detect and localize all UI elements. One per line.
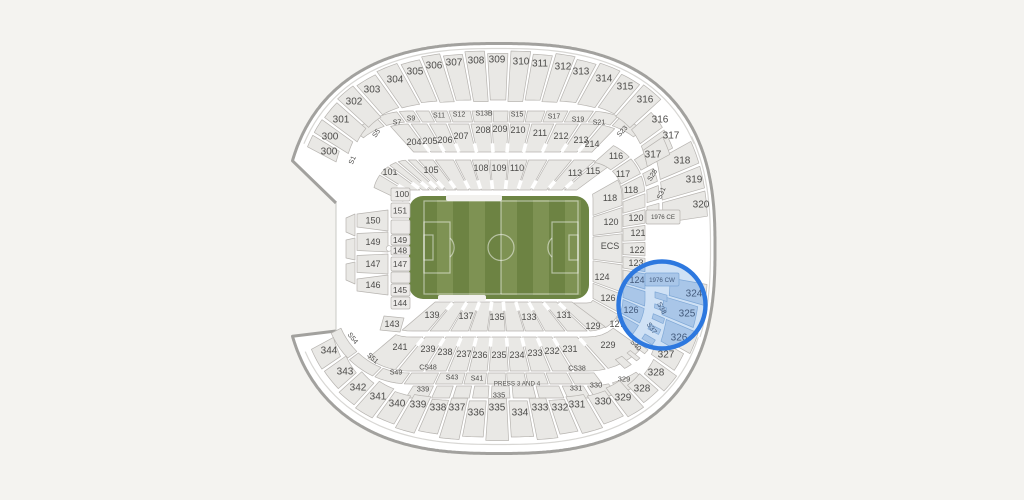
- svg-text:137: 137: [458, 311, 473, 321]
- svg-text:116: 116: [609, 151, 623, 161]
- svg-text:338: 338: [430, 403, 447, 414]
- svg-text:302: 302: [346, 97, 363, 108]
- svg-text:231: 231: [562, 344, 577, 354]
- svg-text:S21: S21: [593, 120, 606, 127]
- svg-text:241: 241: [392, 342, 407, 352]
- svg-text:308: 308: [468, 56, 485, 67]
- svg-text:343: 343: [337, 367, 354, 378]
- svg-text:330: 330: [590, 381, 603, 390]
- svg-text:339: 339: [417, 385, 430, 394]
- svg-text:337: 337: [449, 403, 466, 414]
- svg-text:339: 339: [410, 400, 427, 411]
- svg-text:316: 316: [652, 115, 669, 126]
- svg-text:303: 303: [364, 85, 381, 96]
- svg-text:314: 314: [596, 74, 613, 85]
- svg-text:324: 324: [686, 289, 703, 300]
- svg-text:332: 332: [552, 403, 569, 414]
- svg-text:1976 CE: 1976 CE: [651, 214, 675, 221]
- svg-text:236: 236: [472, 350, 487, 360]
- svg-text:126: 126: [600, 293, 615, 303]
- svg-text:211: 211: [533, 128, 547, 138]
- svg-text:336: 336: [468, 408, 485, 419]
- svg-text:331: 331: [569, 400, 586, 411]
- svg-text:209: 209: [492, 124, 507, 134]
- svg-text:S15: S15: [511, 112, 524, 119]
- svg-text:109: 109: [491, 163, 506, 173]
- svg-text:329: 329: [615, 393, 632, 404]
- svg-text:108: 108: [473, 163, 488, 173]
- svg-text:151: 151: [393, 206, 407, 216]
- svg-text:315: 315: [617, 82, 634, 93]
- svg-text:214: 214: [584, 139, 599, 149]
- svg-text:212: 212: [553, 131, 568, 141]
- svg-text:147: 147: [393, 259, 407, 269]
- svg-text:330: 330: [595, 397, 612, 408]
- svg-text:131: 131: [556, 310, 571, 320]
- svg-text:229: 229: [600, 340, 615, 350]
- svg-text:235: 235: [491, 350, 506, 360]
- svg-text:301: 301: [333, 115, 350, 126]
- svg-text:319: 319: [686, 175, 703, 186]
- svg-text:135: 135: [489, 312, 504, 322]
- svg-text:S41: S41: [471, 376, 484, 383]
- svg-text:310: 310: [513, 57, 530, 68]
- svg-text:300: 300: [322, 132, 339, 143]
- svg-text:344: 344: [321, 346, 338, 357]
- svg-text:333: 333: [532, 403, 549, 414]
- svg-text:318: 318: [674, 156, 691, 167]
- svg-text:117: 117: [616, 169, 630, 179]
- svg-text:118: 118: [624, 185, 638, 195]
- svg-text:342: 342: [350, 383, 367, 394]
- svg-text:122: 122: [629, 245, 644, 255]
- svg-text:204: 204: [406, 137, 421, 147]
- svg-text:238: 238: [437, 347, 452, 357]
- svg-text:317: 317: [663, 131, 680, 142]
- svg-text:233: 233: [527, 348, 542, 358]
- svg-text:124: 124: [594, 272, 609, 282]
- svg-text:105: 105: [423, 165, 438, 175]
- svg-text:313: 313: [573, 67, 590, 78]
- svg-text:149: 149: [365, 237, 380, 247]
- svg-text:208: 208: [475, 125, 490, 135]
- svg-text:207: 207: [453, 131, 468, 141]
- svg-text:S7: S7: [393, 120, 402, 127]
- svg-text:309: 309: [489, 55, 506, 66]
- svg-text:206: 206: [437, 135, 452, 145]
- svg-text:148: 148: [393, 246, 407, 256]
- svg-text:126: 126: [623, 305, 638, 315]
- svg-text:145: 145: [393, 285, 407, 295]
- svg-text:334: 334: [512, 408, 529, 419]
- svg-text:120: 120: [628, 213, 643, 223]
- svg-text:306: 306: [426, 61, 443, 72]
- svg-text:S19: S19: [572, 117, 585, 124]
- svg-text:150: 150: [365, 216, 380, 226]
- svg-text:325: 325: [679, 309, 696, 320]
- svg-text:307: 307: [446, 58, 463, 69]
- svg-text:232: 232: [544, 346, 559, 356]
- svg-text:331: 331: [570, 384, 583, 393]
- svg-text:S49: S49: [390, 370, 403, 377]
- svg-text:S13B: S13B: [475, 111, 492, 118]
- svg-text:110: 110: [510, 163, 524, 173]
- svg-text:320: 320: [693, 200, 710, 211]
- svg-text:CS38: CS38: [568, 366, 586, 373]
- svg-text:237: 237: [456, 349, 471, 359]
- svg-text:327: 327: [658, 350, 675, 361]
- svg-text:139: 139: [424, 310, 439, 320]
- svg-text:146: 146: [365, 280, 380, 290]
- svg-text:121: 121: [630, 228, 645, 238]
- svg-text:S17: S17: [548, 114, 561, 121]
- svg-text:328: 328: [648, 368, 665, 379]
- svg-text:340: 340: [389, 399, 406, 410]
- svg-text:133: 133: [521, 312, 536, 322]
- svg-text:S12: S12: [453, 112, 466, 119]
- svg-text:341: 341: [370, 392, 387, 403]
- svg-text:S43: S43: [446, 375, 459, 382]
- svg-text:239: 239: [420, 344, 435, 354]
- svg-text:129: 129: [585, 321, 600, 331]
- svg-text:144: 144: [393, 298, 407, 308]
- svg-text:311: 311: [532, 59, 548, 70]
- svg-text:316: 316: [637, 95, 654, 106]
- svg-text:210: 210: [510, 125, 525, 135]
- svg-text:335: 335: [489, 403, 506, 414]
- svg-text:CS48: CS48: [419, 365, 437, 372]
- svg-text:120: 120: [603, 217, 618, 227]
- svg-text:147: 147: [365, 259, 380, 269]
- svg-text:118: 118: [603, 193, 617, 203]
- svg-text:317: 317: [645, 150, 662, 161]
- svg-text:115: 115: [586, 166, 600, 176]
- svg-text:100: 100: [395, 189, 409, 199]
- svg-text:304: 304: [387, 75, 404, 86]
- svg-text:300: 300: [321, 147, 338, 158]
- svg-text:1976 CW: 1976 CW: [649, 277, 675, 284]
- svg-text:S9: S9: [407, 116, 416, 123]
- svg-text:143: 143: [384, 319, 399, 329]
- svg-text:234: 234: [509, 350, 524, 360]
- svg-text:312: 312: [555, 62, 572, 73]
- svg-text:149: 149: [393, 235, 407, 245]
- svg-text:305: 305: [407, 67, 424, 78]
- svg-text:S11: S11: [433, 113, 445, 120]
- svg-text:328: 328: [634, 384, 651, 395]
- svg-text:ECS: ECS: [601, 241, 620, 251]
